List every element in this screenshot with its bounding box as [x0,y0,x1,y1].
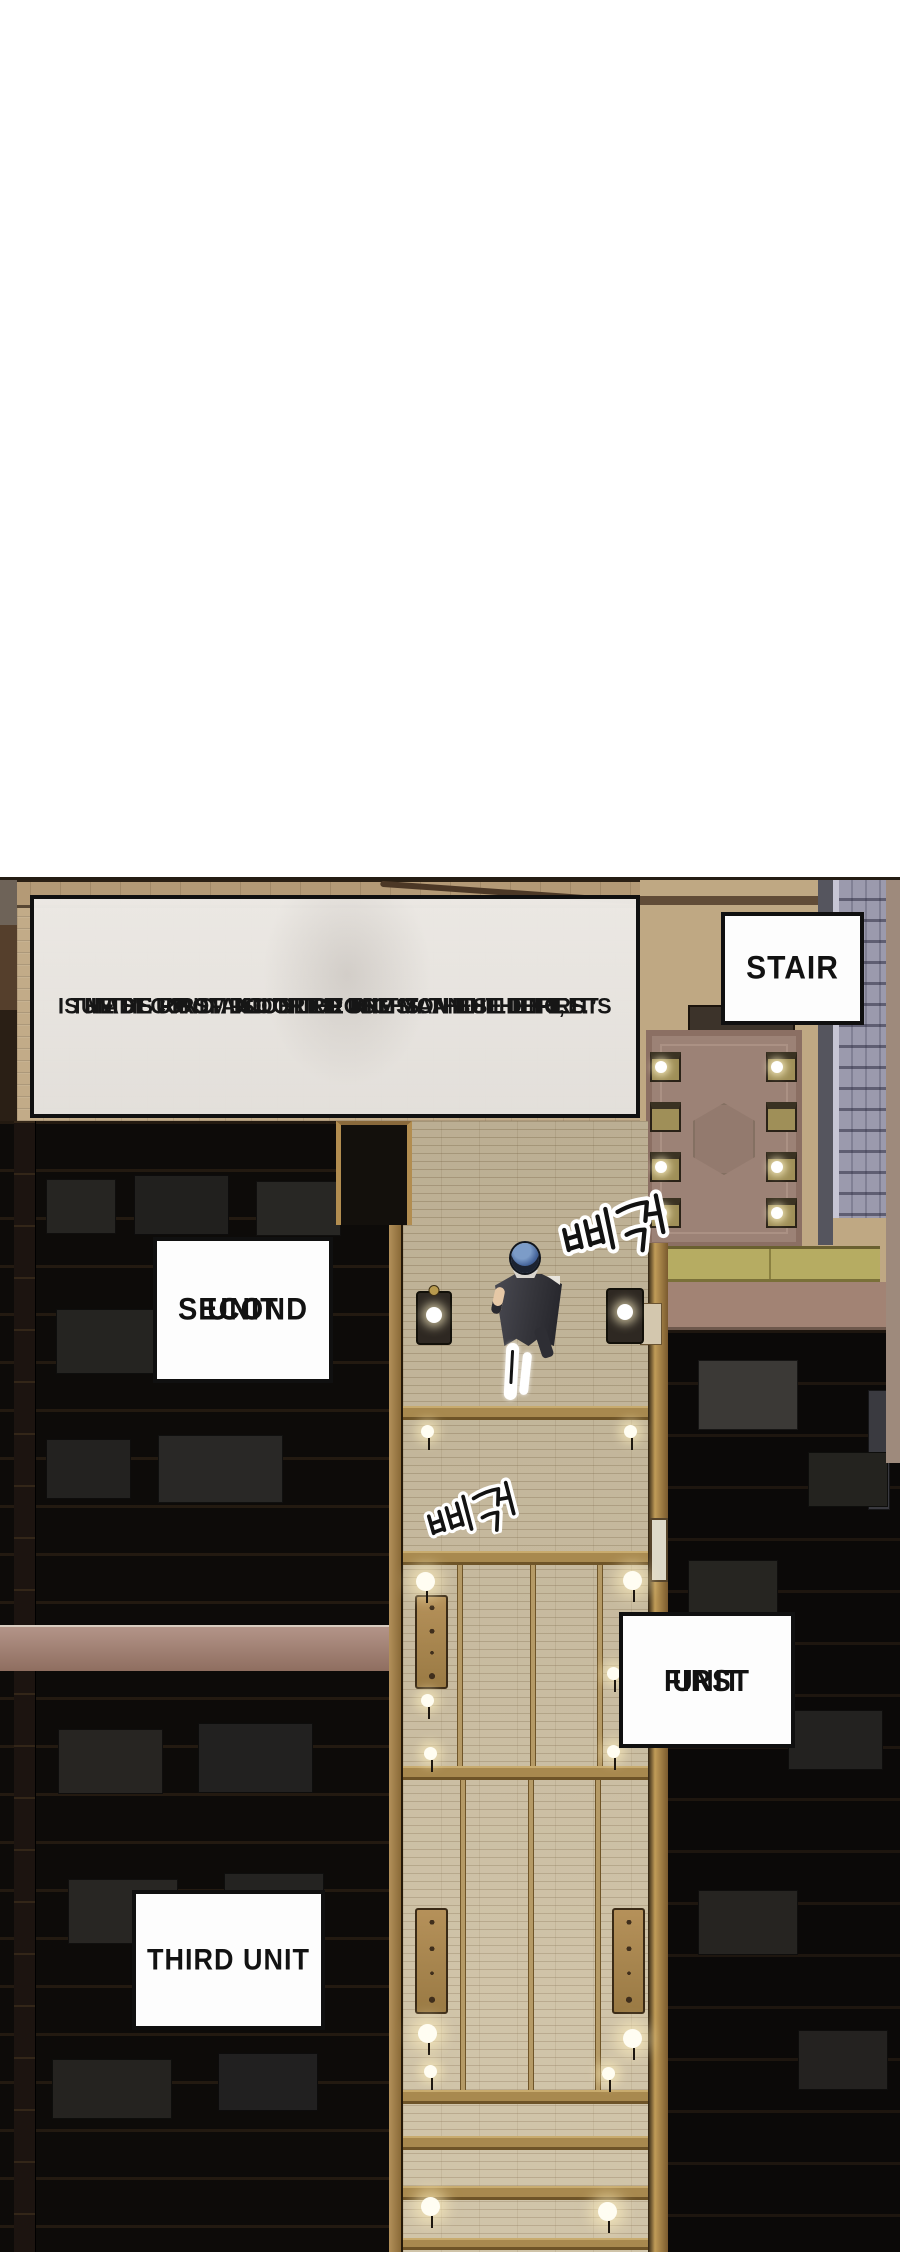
room-furniture [198,1723,313,1793]
corridor-cross-beam [403,1766,648,1780]
room-furniture [218,2053,318,2111]
lamp-box [650,1152,681,1182]
room-furniture [58,1729,163,1794]
floor-lamp [421,2197,440,2216]
room-furniture [46,1179,116,1234]
corridor-left-beam [389,1121,403,2252]
second-unit-label-line: UNIT [207,1289,279,1330]
floor-lamp [421,1425,434,1438]
room-furniture [698,1890,798,1955]
walking-character [494,1243,564,1358]
narration-caption-box: THE FIRST FLOOR OF THE MAN BUILDING IS M… [30,895,640,1118]
room-furniture [788,1710,883,1770]
stair-label: STAIR [746,950,839,987]
stair-label-box: STAIR [721,912,864,1025]
corridor-cross-beam [403,2238,648,2250]
lit-door-panel [650,1518,668,1582]
right-wall-strip [886,880,900,1463]
floor-divider [597,1565,603,1766]
floor-lamp [424,1747,437,1760]
first-unit-label-box: FIRST UNIT [619,1612,795,1748]
lamp-stand [416,1291,452,1345]
corridor-cross-beam [403,2186,648,2200]
floor-lamp [623,2029,642,2048]
floor-lamp [623,1571,642,1590]
webtoon-page: THE FIRST FLOOR OF THE MAN BUILDING IS M… [0,0,900,2255]
lamp-box [650,1102,681,1132]
lamp-stand [606,1288,644,1344]
door-plank [415,1595,448,1689]
wall-beam [640,896,840,905]
character-head [511,1243,539,1273]
lamp-box [766,1198,797,1228]
second-unit-doorway [336,1121,412,1225]
floor-divider [530,1565,536,1766]
door-plank [612,1908,645,2014]
second-unit-label-box: SECOND UNIT [153,1237,333,1383]
left-cross-beam [0,1625,392,1671]
room-furniture [52,2059,172,2119]
floor-lamp [421,1694,434,1707]
lamp-box [766,1052,797,1082]
room-furniture [46,1439,131,1499]
room-furniture [808,1452,888,1507]
floor-lamp [598,2202,617,2221]
lamp-box [766,1102,797,1132]
floor-divider [528,1780,534,2090]
landing-front-band [653,1282,900,1330]
left-room-doors-column [14,1121,36,2252]
room-furniture [798,2030,888,2090]
floor-lamp [602,2067,615,2080]
room-furniture [134,1175,229,1235]
corridor-cross-beam [403,2136,648,2150]
lamp-box [766,1152,797,1182]
lamp-box [650,1052,681,1082]
third-unit-label-box: THIRD UNIT [132,1890,325,2030]
caption-line: UNIT’S ROOM IS ON THE RIGHT. THESE THREE… [81,992,589,1021]
first-unit-room-interior [668,1330,900,2252]
floor-lamp [424,2065,437,2078]
first-unit-label-line: UNIT [672,1660,741,1700]
room-furniture [158,1435,283,1503]
floor-divider [457,1565,463,1766]
landing-edge-beam [658,1246,880,1282]
corridor-cross-beam [403,1406,648,1420]
room-furniture [688,1560,778,1620]
room-furniture [56,1309,156,1374]
door-plank [415,1908,448,2014]
room-furniture [256,1181,341,1236]
character-coat [495,1274,562,1346]
floor-divider [595,1780,601,2090]
floor-divider [460,1780,466,2090]
floor-lamp [418,2024,437,2043]
floor-lamp [624,1425,637,1438]
third-unit-label: THIRD UNIT [147,1943,310,1976]
room-furniture [698,1360,798,1430]
floor-lamp [416,1572,435,1591]
corridor-cross-beam [403,2090,648,2104]
